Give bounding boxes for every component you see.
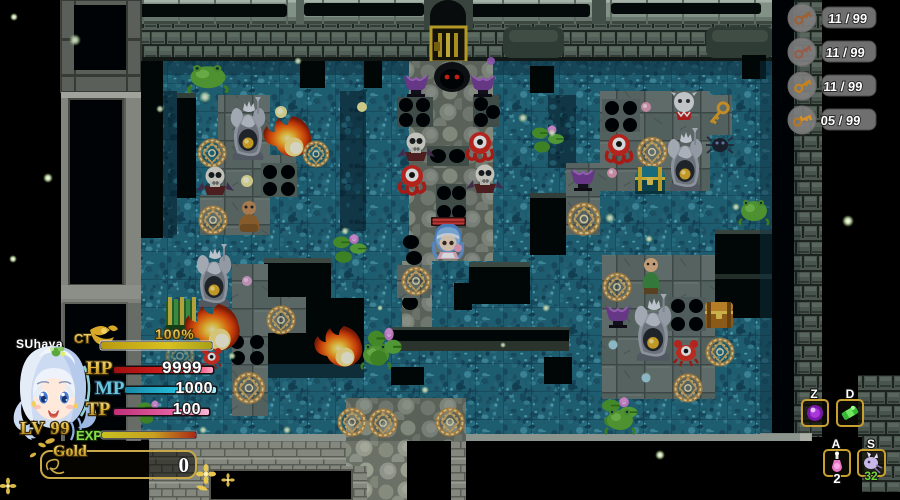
svg-text:LV 99: LV 99 xyxy=(20,418,71,438)
svg-text:100: 100 xyxy=(173,401,201,418)
svg-text:TP: TP xyxy=(86,399,111,420)
svg-text:CT: CT xyxy=(74,331,91,346)
svg-text:0: 0 xyxy=(179,453,190,477)
svg-text:D: D xyxy=(846,387,855,401)
svg-text:11 / 99: 11 / 99 xyxy=(823,79,863,94)
svg-text:11 / 99: 11 / 99 xyxy=(828,11,868,26)
svg-text:A: A xyxy=(832,437,841,451)
svg-text:100%: 100% xyxy=(155,326,195,342)
svg-text:1000: 1000 xyxy=(175,380,213,397)
svg-text:HP: HP xyxy=(86,358,113,379)
svg-text:Z: Z xyxy=(810,387,817,401)
svg-text:9999: 9999 xyxy=(162,358,202,377)
svg-text:Gold: Gold xyxy=(53,443,87,460)
svg-text:32: 32 xyxy=(864,469,878,483)
svg-text:05 / 99: 05 / 99 xyxy=(820,113,861,128)
svg-text:MP: MP xyxy=(95,378,125,399)
svg-text:EXP: EXP xyxy=(76,428,102,443)
svg-text:11 / 99: 11 / 99 xyxy=(825,45,865,60)
svg-text:2: 2 xyxy=(833,471,840,486)
svg-text:S: S xyxy=(867,437,875,451)
